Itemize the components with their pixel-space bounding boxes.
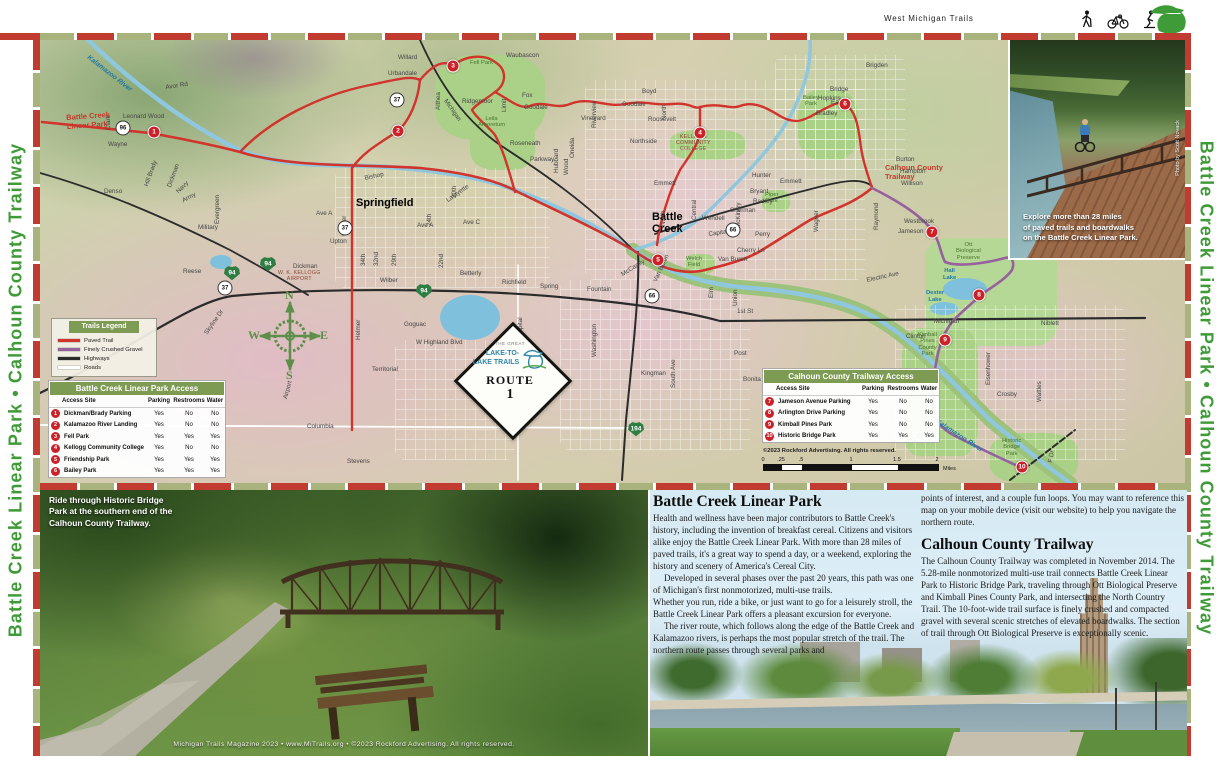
trail-map: N E S W SpringfieldBattle CreekBattle Cr… <box>40 40 1185 483</box>
map-label: Historic Bridge Park <box>1002 438 1021 457</box>
route-1-badge: The Great Lake-to- Lake Trails ROUTE 1 <box>454 341 566 417</box>
lawn-right <box>1070 730 1187 756</box>
legend-swatch <box>58 348 80 351</box>
map-label: Urbandale <box>388 70 417 77</box>
article-paragraph: Health and wellness have been major cont… <box>653 513 917 573</box>
map-label: 24th <box>426 214 433 226</box>
map-label: Riverview <box>591 101 598 128</box>
access-row: 1Dickman/Brady ParkingYesNoNo <box>49 408 225 420</box>
map-label: Wilber <box>380 277 398 284</box>
lamp-post <box>1155 682 1157 730</box>
photo-caption: Ride through Historic Bridge Park at the… <box>49 495 172 529</box>
michigan-state-icon <box>1146 1 1198 35</box>
boardwalk-railing <box>1027 130 1185 200</box>
hiker-icon <box>1080 10 1094 29</box>
column-header: Water <box>206 396 224 407</box>
compass-rose: N E S W <box>250 290 330 382</box>
map-label: Northside <box>630 138 657 145</box>
column-header: Parking <box>146 396 172 407</box>
access-marker-3: 3 <box>447 60 460 73</box>
column-header: Water <box>920 384 938 395</box>
map-label: Ridgemoor <box>462 98 493 105</box>
map-label: Hampton <box>900 168 926 175</box>
map-label: Michigan <box>934 318 959 325</box>
map-label: Willard <box>398 54 417 61</box>
map-label: Bryant <box>750 188 768 195</box>
michigan-outline-icon <box>521 347 547 371</box>
map-label: Willison <box>901 180 923 187</box>
map-label: Van Buren <box>718 256 747 263</box>
map-label: Fox <box>522 92 533 99</box>
map-label: Waubascon <box>506 52 539 59</box>
map-label: Parkway <box>530 156 554 163</box>
calhoun-access-table: Calhoun County Trailway Access Access Si… <box>762 368 940 443</box>
access-row: 6Bailey ParkYesYesYes <box>49 466 225 478</box>
article-battle-creek: Battle Creek Linear Park Health and well… <box>653 493 917 657</box>
dashed-border-middle <box>40 483 1184 490</box>
map-label: Welch Field <box>686 256 702 269</box>
access-marker-7: 7 <box>926 226 939 239</box>
scale-tick: .25 <box>777 457 785 463</box>
riverside-walkway <box>946 732 1084 756</box>
truss-bridge <box>280 558 504 630</box>
access-row: 10Historic Bridge ParkYesYesYes <box>763 431 939 443</box>
scale-unit: Miles <box>943 466 956 472</box>
map-label: Wendell <box>702 215 725 222</box>
map-label: KELLOGG COMMUNITY COLLEGE <box>676 134 711 153</box>
article-title: Calhoun County Trailway <box>921 536 1185 554</box>
map-label: Military <box>198 224 218 231</box>
scale-tick: 1.5 <box>893 457 901 463</box>
access-row: 8Arlington Drive ParkingYesNoNo <box>763 408 939 420</box>
map-label: North <box>660 211 667 226</box>
map-label: Dexter Lake <box>926 290 944 303</box>
map-label: Niblett <box>1041 320 1059 327</box>
map-label: Eisenhower <box>985 352 992 385</box>
access-row: 5Friendship ParkYesYesYes <box>49 454 225 466</box>
dashed-border-top <box>0 33 1191 40</box>
map-label: Columbia <box>307 423 334 430</box>
map-label: Battle Creek <box>652 212 683 235</box>
map-label: Cherry Ln <box>737 247 765 254</box>
map-label: Radley <box>753 198 773 205</box>
map-label: Crosby <box>997 391 1017 398</box>
cyclist-in-photo <box>1072 118 1098 152</box>
access-row: 3Fell ParkYesYesYes <box>49 431 225 443</box>
compass-w: W <box>248 328 260 343</box>
map-label: Kingman <box>641 370 666 377</box>
map-label: Washington <box>591 324 598 357</box>
article-title: Battle Creek Linear Park <box>653 493 917 511</box>
map-label: Hall Lake <box>943 268 956 281</box>
map-label: Bridge <box>830 86 848 93</box>
map-label: 29th <box>391 254 398 266</box>
badge-route-number: 1 <box>507 388 514 402</box>
map-label: Denso <box>104 188 122 195</box>
brochure-page: West Michigan Trails Battle Creek Linear… <box>0 0 1224 774</box>
access-marker-5: 5 <box>652 254 665 267</box>
legend-label: Roads <box>84 365 101 371</box>
table-header: Access SiteParkingRestroomsWater <box>49 396 225 408</box>
map-label: Leonard Wood <box>123 113 164 120</box>
table-title: Battle Creek Linear Park Access <box>49 381 225 396</box>
map-label: Springfield <box>356 198 413 210</box>
map-label: Evergreen <box>214 195 221 224</box>
access-row: 4Kellogg Community CollegeYesNoNo <box>49 443 225 455</box>
map-label: Post <box>734 350 747 357</box>
access-marker-6: 6 <box>839 98 852 111</box>
map-label: Emmett <box>780 178 802 185</box>
map-label: Althea <box>435 92 442 110</box>
scale-tick: 1 <box>849 457 852 463</box>
article-paragraph: The river route, which follows along the… <box>653 621 917 657</box>
legend-swatch <box>58 357 80 360</box>
lawn <box>650 728 960 756</box>
access-marker-1: 1 <box>148 126 161 139</box>
route-shield-66: 66 <box>645 289 660 304</box>
scale-tick: 2 <box>935 457 938 463</box>
legend-item: Paved Trail <box>52 336 156 345</box>
map-label: Richfield <box>502 279 526 286</box>
map-label: Elm <box>708 287 715 298</box>
map-label: Oneida <box>569 138 576 158</box>
map-label: Ott Biological Preserve <box>956 242 981 261</box>
map-label: Reese <box>183 268 201 275</box>
map-label: Hubbard <box>553 149 560 173</box>
map-label: Goguac <box>404 321 426 328</box>
map-label: Sherman <box>730 207 756 214</box>
map-label: 1st St <box>737 308 753 315</box>
map-label: Limit <box>501 99 508 112</box>
article-paragraph: points of interest, and a couple fun loo… <box>921 493 1185 529</box>
map-label: W. K. KELLOGG AIRPORT <box>278 270 321 282</box>
wooden-bench <box>315 664 437 741</box>
boardwalk-photo-inset: Explore more than 28 miles of paved trai… <box>1008 40 1185 260</box>
column-header: Parking <box>860 384 886 395</box>
route-shield-37: 37 <box>338 221 353 236</box>
column-header: Access Site <box>62 396 146 407</box>
map-label: Clark <box>105 115 112 130</box>
sidebar-title-right: Battle Creek Linear Park • Calhoun Count… <box>1196 141 1217 635</box>
map-label: Fountain <box>587 286 612 293</box>
route-shield-66: 66 <box>726 223 741 238</box>
route-shield-96: 96 <box>116 121 131 136</box>
access-marker-4: 4 <box>694 127 707 140</box>
trails-legend-title: Trails Legend <box>69 321 139 333</box>
access-marker-2: 2 <box>392 125 405 138</box>
column-header: Restrooms <box>886 384 920 395</box>
photo-shapes <box>40 490 648 756</box>
cyclist-icon <box>1107 12 1129 29</box>
badge-name-line1: Lake-to- <box>473 350 519 359</box>
map-label: Wayne <box>108 141 127 148</box>
map-label: Betterly <box>460 270 481 277</box>
map-label: 34th <box>360 254 367 266</box>
map-label: Bonita <box>743 376 761 383</box>
lamp-post <box>1115 688 1117 730</box>
legend-item: Finely Crushed Gravel <box>52 345 156 354</box>
dashed-border-left <box>33 33 40 756</box>
map-label: Helmer <box>355 320 362 340</box>
battle-creek-access-table: Battle Creek Linear Park Access Access S… <box>48 380 226 478</box>
map-label: Hunter <box>752 172 771 179</box>
scale-tick: 0 <box>761 457 764 463</box>
route-shield-37: 37 <box>218 281 233 296</box>
map-label: 22nd <box>438 254 445 268</box>
legend-label: Finely Crushed Gravel <box>84 347 143 353</box>
table-title: Calhoun County Trailway Access <box>763 369 939 384</box>
route-shield-37: 37 <box>390 93 405 108</box>
map-label: Bailey Park <box>803 95 819 108</box>
scale-tick: .5 <box>799 457 804 463</box>
badge-route-label: ROUTE <box>486 373 534 388</box>
map-label: Leila Arboretum <box>478 116 505 129</box>
paved-trail-fell-connector <box>352 80 420 168</box>
map-label: Wagner <box>813 210 820 232</box>
map-label: Stevens <box>347 458 370 465</box>
map-label: Goodale <box>622 101 646 108</box>
badge-pre-text: The Great <box>495 341 525 346</box>
inset-caption: Explore more than 28 miles of paved trai… <box>1023 212 1138 244</box>
legend-item: Highways <box>52 354 156 363</box>
riverbank-in-photo <box>1010 74 1130 96</box>
map-label: Bradley <box>816 110 837 117</box>
badge-name-line2: Lake Trails <box>473 359 519 368</box>
map-label: Upton <box>330 238 347 245</box>
map-label: Raymond <box>873 203 880 230</box>
map-label: Clinton <box>906 333 926 340</box>
article-calhoun: points of interest, and a couple fun loo… <box>921 493 1185 640</box>
access-row: 9Kimball Pines ParkYesNoNo <box>763 419 939 431</box>
table-header: Access SiteParkingRestroomsWater <box>763 384 939 396</box>
dickman-road <box>40 173 308 295</box>
article-panel: Battle Creek Linear Park Health and well… <box>648 490 1187 756</box>
map-label: Wattles <box>1036 381 1043 402</box>
legend-swatch <box>58 366 80 369</box>
map-label: Roseneath <box>510 140 540 147</box>
map-label: Fell Park <box>470 60 493 66</box>
compass-e: E <box>320 328 328 343</box>
map-label: Westbrook <box>904 218 934 225</box>
access-row: 2Kalamazoo River LandingYesNoNo <box>49 420 225 432</box>
map-label: 32nd <box>373 252 380 266</box>
i194-highway <box>622 252 638 480</box>
trails-legend: Trails Legend Paved TrailFinely Crushed … <box>51 318 157 377</box>
map-label: Burton <box>896 156 915 163</box>
article-paragraph: The Calhoun County Trailway was complete… <box>921 556 1185 640</box>
map-label: Goodale <box>524 104 548 111</box>
sidebar-title-left: Battle Creek Linear Park • Calhoun Count… <box>6 143 27 637</box>
map-label: North <box>661 105 668 120</box>
magazine-footer: Michigan Trails Magazine 2023 • www.MiTr… <box>40 741 648 748</box>
map-label: South Ave <box>670 359 677 388</box>
map-copyright: ©2023 Rockford Advertising. All rights r… <box>763 448 896 454</box>
map-label: Spring <box>540 283 558 290</box>
article-paragraph: Developed in several phases over the pas… <box>653 573 917 597</box>
legend-item: Roads <box>52 363 156 372</box>
photo-credit: Photo by Scott Novack <box>1175 120 1181 176</box>
legend-label: Paved Trail <box>84 338 113 344</box>
column-header: Restrooms <box>172 396 206 407</box>
map-label: Brigden <box>866 62 888 69</box>
map-label: Jameson <box>898 228 924 235</box>
column-header: Access Site <box>776 384 860 395</box>
legend-swatch <box>58 339 80 342</box>
map-label: Wood <box>563 159 570 175</box>
access-row: 7Jameson Avenue ParkingYesNoNo <box>763 396 939 408</box>
map-label: Union <box>732 290 739 306</box>
bridge-trail-photo: Ride through Historic Bridge Park at the… <box>40 490 648 756</box>
map-label: Emmett <box>654 180 676 187</box>
map-label: Dickman <box>293 263 318 270</box>
map-label: Perry <box>755 231 770 238</box>
map-label: Ave A <box>316 210 332 217</box>
map-label: Central <box>691 200 698 220</box>
page-title: West Michigan Trails <box>884 14 974 23</box>
legend-label: Highways <box>84 356 110 362</box>
map-label: Ave C <box>463 219 480 226</box>
access-marker-8: 8 <box>973 289 986 302</box>
access-marker-10: 10 <box>1016 461 1029 474</box>
article-paragraph: Whether you run, ride a bike, or just wa… <box>653 597 917 621</box>
map-label: Territorial <box>372 366 398 373</box>
map-scale-bar: 0.25.511.52 Miles <box>763 457 963 473</box>
map-label: Boyd <box>642 88 656 95</box>
access-marker-9: 9 <box>939 334 952 347</box>
compass-n: N <box>285 288 294 303</box>
